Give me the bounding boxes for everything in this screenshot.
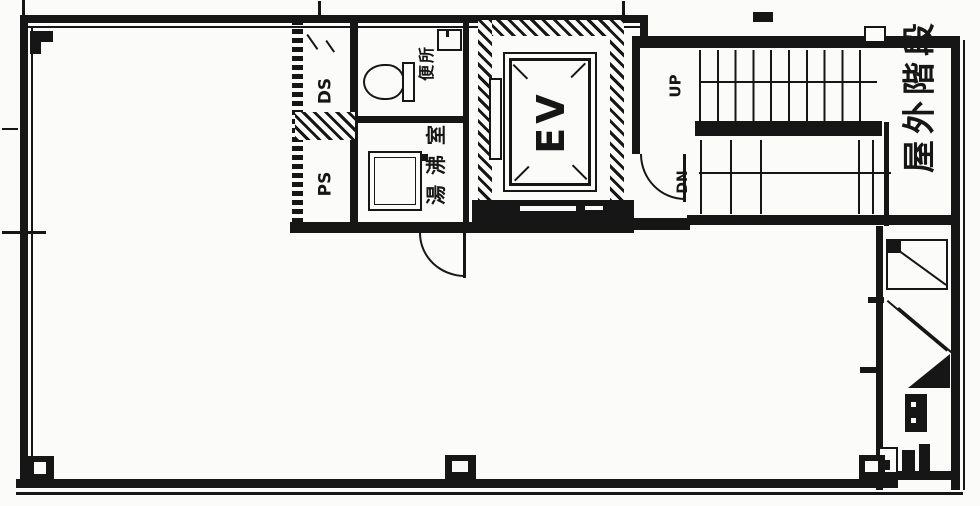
strip-wall-tick — [860, 367, 876, 373]
ev-door-gap — [520, 206, 576, 211]
datum-tick-top-mid — [622, 1, 625, 16]
meter-box-dot — [911, 402, 916, 407]
strip-diagonal-mark — [898, 307, 954, 355]
stair-top-notch — [864, 26, 886, 43]
column-marker-core — [452, 461, 468, 472]
label-duct-shaft: DS — [318, 78, 335, 104]
entrance-triangle-icon — [908, 354, 950, 388]
label-elevator: EV — [532, 90, 570, 153]
label-kitchenette: 湯沸室 — [426, 115, 446, 205]
column-marker-core — [41, 42, 53, 54]
wall-kitchen-right — [463, 20, 469, 222]
label-stair-up: UP — [669, 74, 684, 97]
label-pipe-shaft: PS — [318, 172, 335, 197]
meter-box-dot — [911, 418, 916, 423]
shaft-slash-mark — [306, 34, 318, 50]
column-marker-core — [34, 462, 46, 474]
stair-landing-rail — [695, 121, 882, 136]
stair-treads-upper — [699, 50, 877, 121]
wall-stair-strip-divider — [884, 122, 889, 226]
sink-fixture-inner — [374, 157, 416, 205]
wall-ev-top — [478, 20, 624, 36]
strip-fixture-mark — [902, 450, 915, 474]
wall-ev-hall — [632, 44, 640, 154]
wall-left — [20, 15, 28, 488]
label-toilet: 便所 — [419, 45, 435, 81]
elevator-counterweight — [489, 78, 502, 160]
ev-door-gap — [585, 206, 603, 210]
wall-stair-bottom — [687, 215, 960, 225]
strip-wall-tick — [868, 297, 884, 303]
door-leaf-hall — [463, 233, 466, 278]
datum-tick-left — [2, 128, 18, 130]
wall-strip-right — [951, 228, 960, 490]
datum-tick-top-left — [22, 0, 25, 16]
label-stair-down: DN — [676, 170, 690, 193]
door-swing-arc-hall — [419, 233, 465, 277]
wall-stair-right — [951, 36, 960, 228]
toilet-tank-fixture — [402, 62, 415, 102]
wall-ev-right — [610, 20, 624, 202]
label-outdoor-staircase: 屋外階段 — [903, 17, 936, 173]
datum-mark-stair-top — [753, 12, 773, 22]
wall-right-outer-line — [963, 40, 965, 490]
shaft-slash-mark — [325, 40, 335, 53]
strip-meter-box — [905, 394, 927, 432]
datum-cross-left — [2, 231, 46, 234]
duct-box — [437, 29, 462, 51]
stair-rail-lower — [699, 172, 891, 174]
duct-box-tick — [446, 29, 449, 37]
wall-toilet-kitchen-divider — [356, 116, 468, 123]
wall-shaft-divider — [295, 112, 355, 140]
stair-treads-lower-left — [700, 140, 788, 214]
strip-diagonal-mark — [887, 300, 948, 352]
stair-rail-upper — [699, 81, 877, 83]
column-marker-core — [865, 461, 878, 472]
floor-plan-sheet: DS PS 便所 湯沸室 EV UP DN 屋外階段 — [0, 0, 980, 506]
wall-hall-junction — [632, 218, 690, 230]
datum-tick-top-core — [318, 1, 321, 16]
wall-bottom-outer-line — [16, 492, 963, 495]
toilet-bowl-fixture — [363, 64, 405, 100]
strip-fixture-mark — [919, 444, 930, 473]
wall-left-inner-line — [31, 28, 33, 476]
wall-ev-south — [472, 200, 634, 224]
